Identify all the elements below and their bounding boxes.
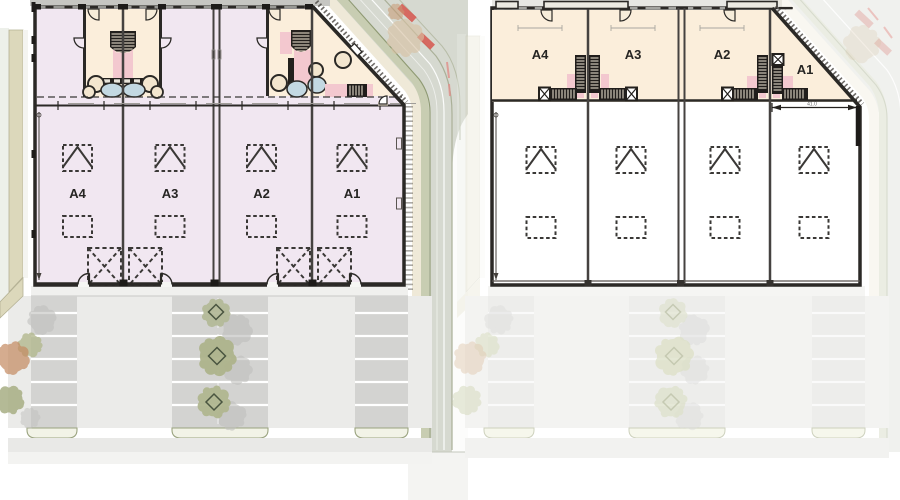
svg-text:A4: A4 [69,186,86,201]
svg-text:A2: A2 [253,186,270,201]
svg-text:41.0: 41.0 [807,102,817,108]
svg-text:A3: A3 [162,186,179,201]
svg-text:A3: A3 [625,47,642,62]
svg-text:A2: A2 [714,47,731,62]
svg-text:A4: A4 [532,47,549,62]
svg-text:A1: A1 [797,62,814,77]
svg-text:A1: A1 [344,186,361,201]
